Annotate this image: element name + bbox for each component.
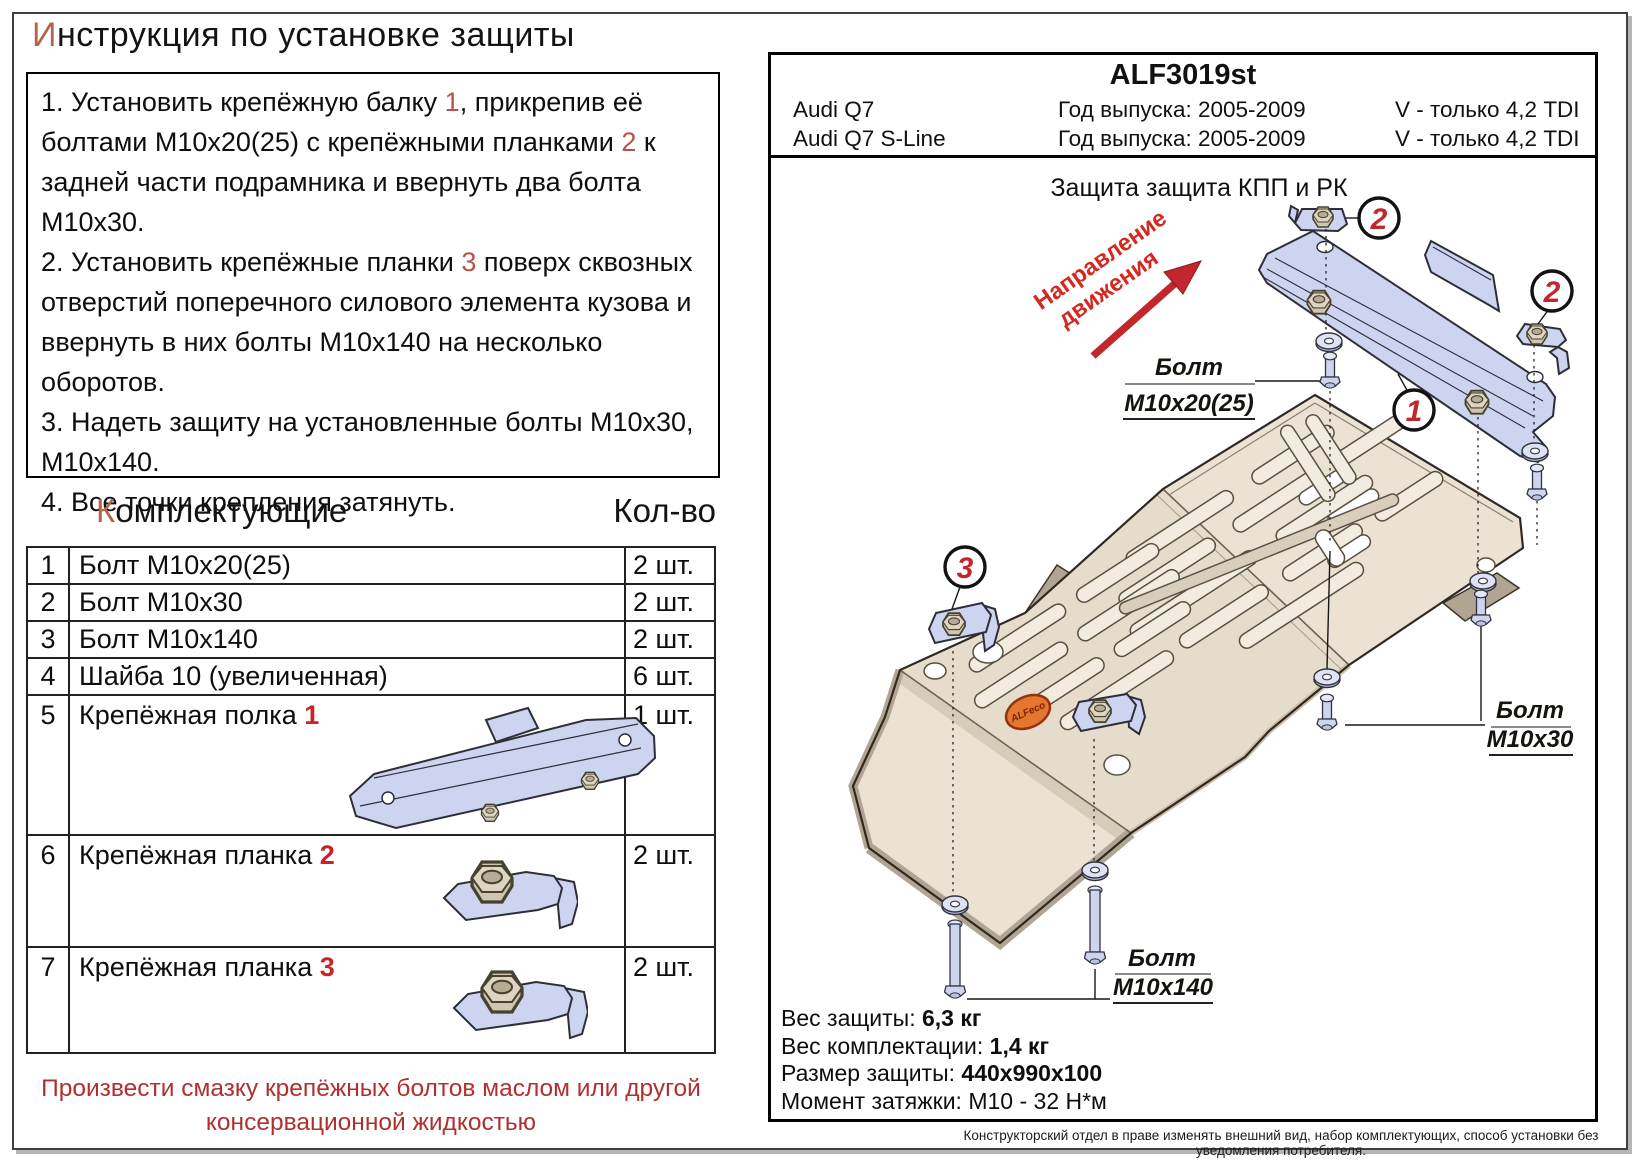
ref-3: 3: [461, 247, 476, 277]
qty-header: Кол-во: [613, 492, 716, 530]
spec-weight: Вес защиты: 6,3 кг: [781, 1005, 1107, 1033]
callout-1-icon: 1: [1394, 390, 1434, 430]
svg-text:Болт: Болт: [1155, 354, 1223, 381]
product-code: ALF3019st: [771, 55, 1595, 95]
specs-block: Вес защиты: 6,3 кг Вес комплектации: 1,4…: [781, 1005, 1107, 1115]
callout-3-icon: 3: [945, 547, 985, 587]
model-year: Год выпуска: 2005-2009: [1058, 124, 1395, 153]
svg-text:М10х30: М10х30: [1487, 726, 1574, 753]
svg-text:3: 3: [957, 552, 974, 585]
part-image-clamp-3: [438, 948, 588, 1053]
model-row: Audi Q7 S-Line Год выпуска: 2005-2009 V …: [771, 124, 1595, 153]
svg-text:Болт: Болт: [1496, 697, 1564, 724]
table-row: 7Крепёжная планка 32 шт.: [27, 947, 715, 1053]
spec-panel: ALF3019st Audi Q7 Год выпуска: 2005-2009…: [768, 52, 1598, 1122]
callout-2-icon: 2: [1532, 271, 1572, 311]
model-engine: V - только 4,2 TDI: [1395, 124, 1595, 153]
model-engine: V - только 4,2 TDI: [1395, 95, 1595, 124]
instruction-step-2: 2. Установить крепёжные планки 3 поверх …: [41, 242, 705, 402]
svg-text:1: 1: [1406, 395, 1423, 428]
model-year: Год выпуска: 2005-2009: [1058, 95, 1395, 124]
svg-text:Болт: Болт: [1128, 945, 1196, 972]
lubrication-note: Произвести смазку крепёжных болтов масло…: [26, 1072, 716, 1140]
instruction-step-1: 1. Установить крепёжную балку 1, прикреп…: [41, 82, 705, 242]
ref-2: 2: [621, 127, 636, 157]
svg-text:2: 2: [1370, 203, 1388, 236]
panel-header: ALF3019st Audi Q7 Год выпуска: 2005-2009…: [771, 55, 1595, 158]
ref-1: 1: [304, 700, 319, 730]
components-header: Комплектующие Кол-во: [26, 492, 716, 530]
svg-text:М10х20(25): М10х20(25): [1124, 390, 1253, 417]
callout-2-icon: 2: [1359, 198, 1399, 238]
table-row: 2Болт М10х302 шт.: [27, 584, 715, 621]
table-row: 1Болт М10х20(25)2 шт.: [27, 547, 715, 584]
label-bolt-m10x20: Болт М10х20(25): [1123, 354, 1255, 419]
label-bolt-m10x30: Болт М10х30: [1487, 697, 1574, 755]
components-title: Комплектующие: [96, 492, 347, 529]
model-name: Audi Q7 S-Line: [793, 124, 1058, 153]
assembly-diagram: ALFeco: [771, 158, 1589, 1016]
part-image-bracket: [338, 700, 658, 835]
label-bolt-m10x140: Болт М10х140: [1113, 945, 1214, 1003]
part-image-clamp-2: [428, 838, 578, 943]
ref-2: 2: [320, 840, 335, 870]
model-name: Audi Q7: [793, 95, 1058, 124]
spec-torque: Момент затяжки: М10 - 32 Н*м: [781, 1088, 1107, 1116]
title-accent-letter: И: [32, 16, 57, 54]
instruction-step-3: 3. Надеть защиту на установленные болты …: [41, 402, 705, 482]
ref-3: 3: [320, 952, 335, 982]
ref-1: 1: [445, 87, 460, 117]
model-row: Audi Q7 Год выпуска: 2005-2009 V - тольк…: [771, 95, 1595, 124]
svg-text:М10х140: М10х140: [1113, 974, 1214, 1001]
page-title: Инструкция по установке защиты: [32, 16, 575, 55]
spec-size: Размер защиты: 440х990х100: [781, 1060, 1107, 1088]
direction-label: Направление движения: [1029, 204, 1187, 337]
drawing-title: Защита защита КПП и РК: [1050, 174, 1348, 202]
table-row: 6Крепёжная планка 22 шт.: [27, 835, 715, 947]
spec-kit-weight: Вес комплектации: 1,4 кг: [781, 1033, 1107, 1061]
table-row: 3Болт М10х1402 шт.: [27, 621, 715, 658]
svg-text:2: 2: [1543, 276, 1561, 309]
disclaimer-text: Конструкторский отдел в праве изменять в…: [950, 1128, 1612, 1158]
beam-tab: [1425, 241, 1499, 311]
instructions-box: 1. Установить крепёжную балку 1, прикреп…: [26, 72, 720, 478]
table-row: 4Шайба 10 (увеличенная)6 шт.: [27, 658, 715, 695]
